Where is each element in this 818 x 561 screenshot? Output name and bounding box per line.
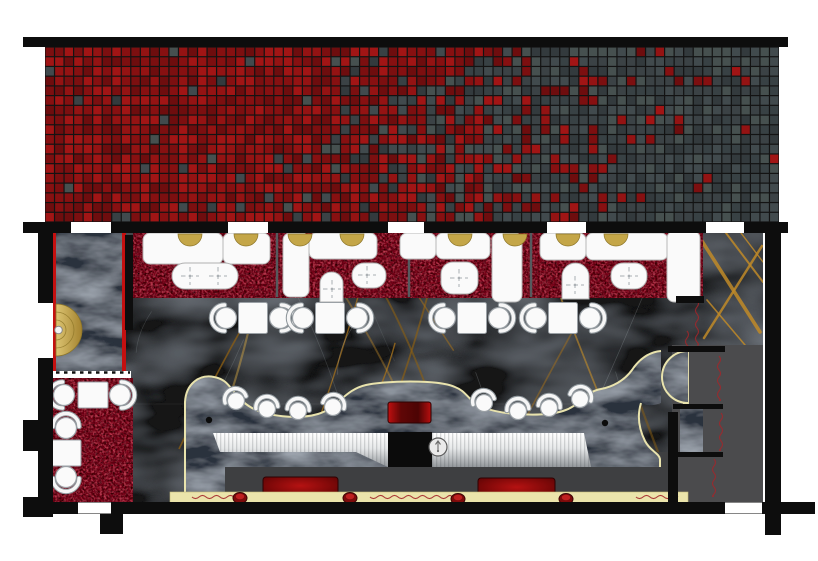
dining-table [549, 303, 578, 334]
door-opening [78, 503, 111, 514]
door-opening [725, 503, 762, 514]
bar-sink [429, 438, 447, 456]
floor-plan-page [0, 0, 818, 561]
bottom-wall [38, 502, 765, 514]
backbar-wall [668, 412, 678, 504]
dining-table-set [289, 303, 372, 334]
backbar-ledge [170, 492, 688, 503]
vestibule-divider-wall [125, 235, 133, 330]
dining-table [239, 303, 268, 334]
left-wall [38, 232, 53, 514]
left-pilaster-upper [23, 420, 53, 451]
service-slate-panel [680, 409, 703, 453]
service-wall-mid [673, 404, 723, 409]
private-table [52, 440, 81, 466]
booth-bench [400, 233, 436, 259]
top-wall [23, 37, 788, 47]
dining-table [458, 303, 487, 334]
dining-table-set [522, 303, 605, 334]
private-table [78, 382, 108, 408]
service-wall-low [673, 452, 723, 457]
mosaic-wall-band [45, 47, 779, 222]
bar-service-box [388, 432, 432, 467]
floor-drain [206, 417, 212, 423]
dining-table-set [431, 303, 514, 334]
red-glass-bar-panel [388, 402, 431, 423]
bottom-right-stub [781, 502, 815, 514]
door-opening [228, 222, 268, 233]
booth-end-wall [676, 296, 704, 303]
entry-vestibule [52, 233, 131, 380]
door-opening [706, 222, 744, 233]
private-table-set [50, 382, 135, 408]
red-knob [343, 493, 357, 504]
red-knob [233, 493, 247, 504]
service-wall-top [668, 346, 725, 352]
door-pivot [55, 326, 63, 334]
door-opening [71, 222, 111, 233]
private-table-set [52, 414, 81, 492]
door-opening [38, 303, 53, 358]
private-dining-room [50, 378, 135, 502]
floor-drain [602, 420, 608, 426]
booth-bench [667, 231, 700, 302]
dining-table [316, 303, 345, 334]
right-wall [765, 228, 781, 535]
dining-table-set [212, 303, 295, 334]
door-opening [547, 222, 586, 233]
bottom-left-stub [100, 510, 123, 534]
restaurant-floor-plan [0, 0, 818, 561]
door-opening [388, 222, 424, 233]
